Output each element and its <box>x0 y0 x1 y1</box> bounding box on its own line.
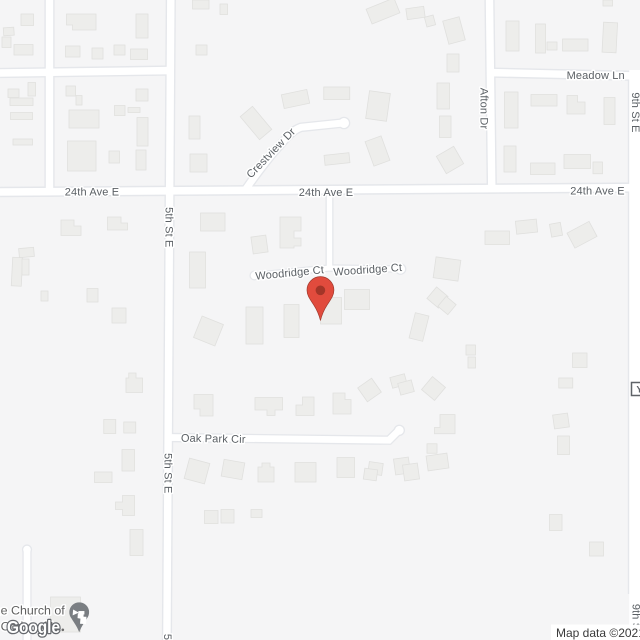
svg-text:5th St E: 5th St E <box>162 453 174 493</box>
svg-text:Map data ©2021: Map data ©2021 <box>556 626 640 640</box>
svg-text:5th St E: 5th St E <box>163 207 175 247</box>
svg-text:24th Ave E: 24th Ave E <box>570 186 625 198</box>
svg-text:The Church of: The Church of <box>0 604 65 618</box>
svg-text:9th St E: 9th St E <box>629 92 640 132</box>
svg-text:Google: Google <box>7 617 60 637</box>
svg-text:Meadow Ln: Meadow Ln <box>567 70 625 82</box>
svg-text:Oak Park Cir: Oak Park Cir <box>181 433 246 446</box>
svg-text:24th Ave E: 24th Ave E <box>299 187 354 199</box>
svg-text:Afton Dr: Afton Dr <box>477 88 489 130</box>
svg-text:5th St E: 5th St E <box>161 634 173 640</box>
svg-text:Y: Y <box>636 385 640 396</box>
svg-text:24th Ave E: 24th Ave E <box>65 187 120 199</box>
